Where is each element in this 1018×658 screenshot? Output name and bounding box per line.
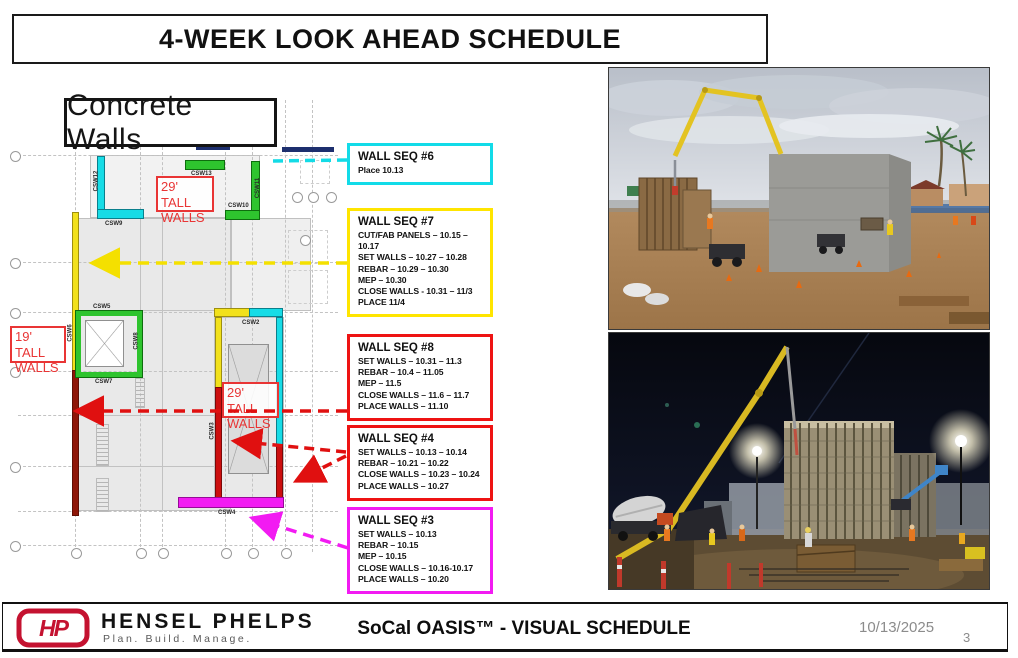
brand-tagline: Plan. Build. Manage.: [103, 633, 252, 645]
callout-title: WALL SEQ #8: [358, 342, 485, 354]
stair-hatch: [96, 424, 109, 466]
callout-wall-seq-4: WALL SEQ #4 SET WALLS – 10.13 – 10.14 RE…: [347, 425, 493, 501]
callout-title: WALL SEQ #7: [358, 216, 485, 228]
callout-line: MEP – 11.5: [358, 378, 485, 389]
wall-tag: CSW8: [134, 332, 140, 349]
photo-night-illustration: [609, 333, 990, 590]
wall-segment-red: [276, 444, 283, 500]
footer-date: 10/13/2025: [859, 619, 934, 636]
callout-line: PLACE 11/4: [358, 297, 485, 308]
wall-tag: CSW2: [242, 320, 259, 326]
callout-line: Place 10.13: [358, 165, 485, 176]
plan-heading-box: Concrete Walls: [64, 98, 277, 147]
slide-title: 4-WEEK LOOK AHEAD SCHEDULE: [159, 24, 621, 55]
wall-segment-green: [225, 210, 260, 220]
gridline: [225, 147, 226, 552]
slide: 4-WEEK LOOK AHEAD SCHEDULE: [0, 0, 1018, 658]
wall-tag: CSW9: [105, 221, 122, 227]
wall-segment-darkred: [72, 370, 79, 516]
photo-daytime-concrete-pour: [608, 67, 990, 330]
callout-line: CLOSE WALLS – 10.23 – 10.24: [358, 469, 485, 480]
callout-line: MEP – 10.30: [358, 275, 485, 286]
interior-wall: [76, 415, 215, 416]
callout-line: CLOSE WALLS - 10.31 – 11/3: [358, 286, 485, 297]
wall-tag: CSW6: [68, 324, 74, 341]
stair-hatch: [135, 378, 145, 408]
grid-bubble: [10, 258, 21, 269]
plan-heading: Concrete Walls: [67, 89, 274, 157]
grid-bubble: [10, 308, 21, 319]
grid-bubble: [292, 192, 303, 203]
slide-title-box: 4-WEEK LOOK AHEAD SCHEDULE: [12, 14, 768, 64]
callout-wall-seq-8: WALL SEQ #8 SET WALLS – 10.31 – 11.3 REB…: [347, 334, 493, 421]
callout-line: PLACE WALLS – 11.10: [358, 401, 485, 412]
wall-tag: CSW7: [95, 379, 112, 385]
gridline: [18, 511, 338, 512]
interior-wall: [76, 466, 215, 467]
footer: HP HENSEL PHELPS Plan. Build. Manage. So…: [2, 602, 1008, 652]
callout-line: REBAR – 10.29 – 10.30: [358, 264, 485, 275]
gridline: [18, 371, 338, 372]
grid-bubble: [158, 548, 169, 559]
grid-bubble: [10, 462, 21, 473]
callout-line: REBAR – 10.4 – 11.05: [358, 367, 485, 378]
callout-line: SET WALLS – 10.13 – 10.14: [358, 447, 485, 458]
wall-tag: CSW11: [255, 178, 261, 198]
wall-tag: CSW4: [218, 510, 235, 516]
callout-title: WALL SEQ #4: [358, 433, 485, 445]
label-29-tall-walls-mid: 29' TALL WALLS: [222, 382, 279, 418]
grid-bubble: [10, 541, 21, 552]
grid-bubble: [136, 548, 147, 559]
wall-segment-yellow: [215, 317, 222, 389]
callout-line: MEP – 10.15: [358, 551, 485, 562]
label-19-tall-walls: 19' TALL WALLS: [10, 326, 66, 363]
wall-segment-yellow: [214, 308, 250, 317]
wall-segment-magenta: [178, 497, 284, 508]
callout-line: PLACE WALLS – 10.27: [358, 481, 485, 492]
callout-line: SET WALLS – 10.31 – 11.3: [358, 356, 485, 367]
grid-bubble: [308, 192, 319, 203]
grid-bubble: [221, 548, 232, 559]
callout-line: PLACE WALLS – 10.20: [358, 574, 485, 585]
plan-detail-bar: [282, 147, 334, 152]
grid-bubble: [281, 548, 292, 559]
callout-line: REBAR – 10.21 – 10.22: [358, 458, 485, 469]
wall-segment-red: [215, 387, 222, 500]
grid-bubble: [10, 151, 21, 162]
wall-tag: CSW13: [191, 171, 212, 177]
page-number: 3: [963, 630, 970, 645]
callout-line: REBAR – 10.15: [358, 540, 485, 551]
photo-daytime-illustration: [609, 68, 990, 330]
wall-segment-cyan: [249, 308, 283, 317]
callout-line: SET WALLS – 10.27 – 10.28: [358, 252, 485, 263]
callout-line: CUT/FAB PANELS – 10.15 – 10.17: [358, 230, 476, 252]
hensel-phelps-logo: HP: [15, 607, 97, 651]
plan-detail: [300, 160, 330, 184]
wall-tag: CSW10: [228, 203, 249, 209]
callout-wall-seq-6: WALL SEQ #6 Place 10.13: [347, 143, 493, 185]
svg-text:HP: HP: [39, 615, 70, 641]
callout-wall-seq-3: WALL SEQ #3 SET WALLS – 10.13 REBAR – 10…: [347, 507, 493, 594]
callout-line: SET WALLS – 10.13: [358, 529, 485, 540]
grid-bubble: [71, 548, 82, 559]
label-29-tall-walls-top: 29' TALL WALLS: [156, 176, 214, 212]
wall-segment-green: [185, 160, 225, 170]
photo-night-concrete-pour: [608, 332, 990, 590]
callout-title: WALL SEQ #3: [358, 515, 485, 527]
callout-wall-seq-7: WALL SEQ #7 CUT/FAB PANELS – 10.15 – 10.…: [347, 208, 493, 317]
brand-name: HENSEL PHELPS: [101, 610, 315, 634]
interior-wall: [140, 218, 141, 310]
footer-title: SoCal OASIS™ - VISUAL SCHEDULE: [324, 618, 724, 640]
wall-tag: CSW12: [93, 171, 99, 192]
plan-detail: [288, 270, 328, 304]
grid-bubble: [248, 548, 259, 559]
wall-segment-cyan: [97, 209, 144, 219]
gridline: [18, 545, 338, 546]
callout-line: CLOSE WALLS – 11.6 – 11.7: [358, 390, 485, 401]
wall-tag: CSW3: [210, 422, 216, 439]
callout-line: CLOSE WALLS – 10.16-10.17: [358, 563, 485, 574]
grid-bubble: [300, 235, 311, 246]
grid-bubble: [326, 192, 337, 203]
wall-tag: CSW5: [93, 304, 110, 310]
gridline: [285, 100, 286, 552]
stair-hatch: [96, 478, 109, 512]
gridline: [18, 312, 338, 313]
shaft-box: [85, 320, 124, 367]
callout-title: WALL SEQ #6: [358, 151, 485, 163]
